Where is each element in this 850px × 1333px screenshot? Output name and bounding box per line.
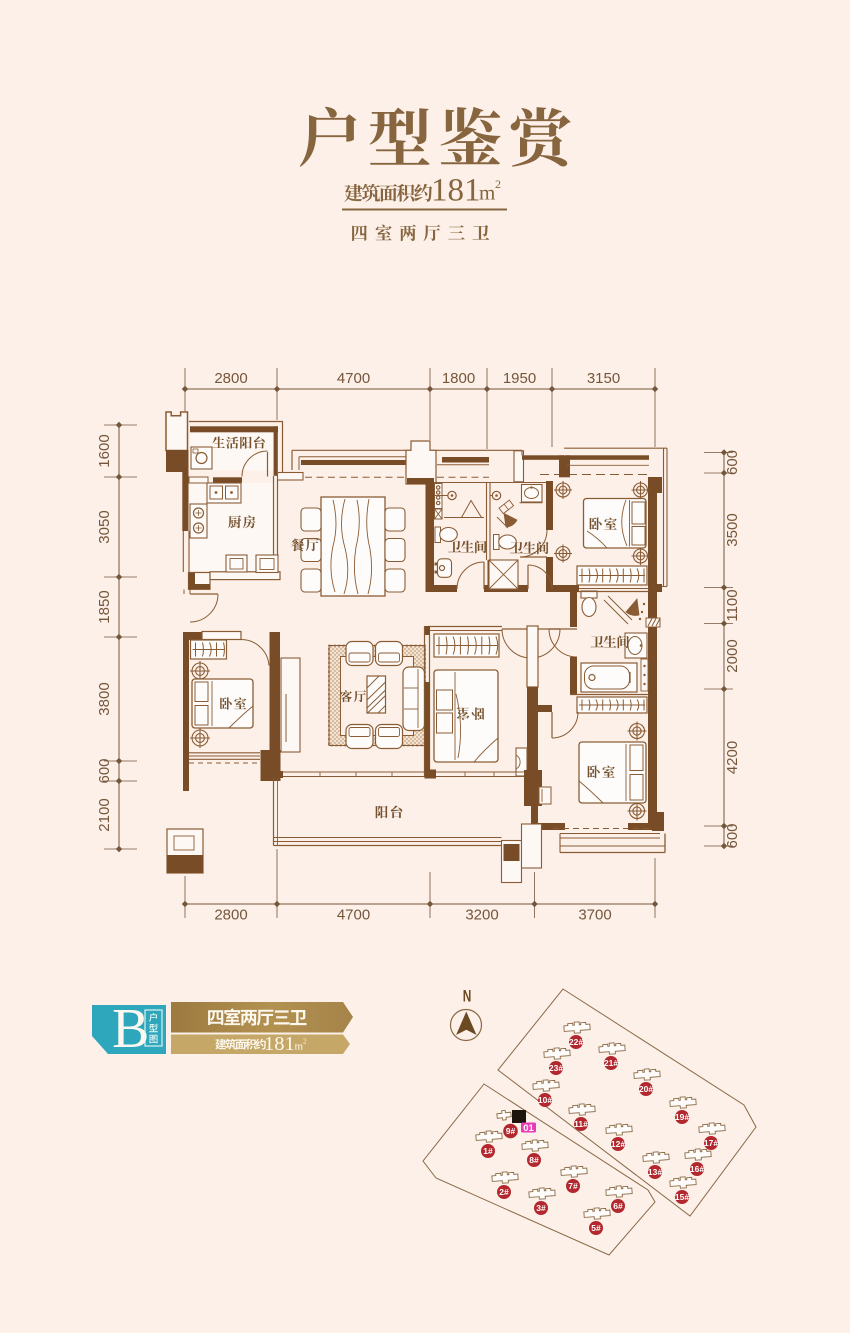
svg-text:4700: 4700 — [337, 907, 370, 924]
svg-text:9#: 9# — [506, 1126, 516, 1136]
svg-text:19#: 19# — [675, 1112, 689, 1122]
svg-text:2100: 2100 — [96, 798, 113, 831]
svg-text:22#: 22# — [569, 1037, 583, 1047]
svg-text:3#: 3# — [536, 1203, 546, 1213]
svg-text:7#: 7# — [568, 1181, 578, 1191]
svg-text:N: N — [463, 988, 472, 1006]
svg-text:8#: 8# — [529, 1155, 539, 1165]
svg-text:1600: 1600 — [96, 434, 113, 467]
svg-text:2800: 2800 — [214, 907, 247, 924]
svg-text:4700: 4700 — [337, 370, 370, 387]
svg-text:181: 181 — [264, 1033, 295, 1055]
svg-text:4200: 4200 — [724, 741, 741, 774]
svg-text:13#: 13# — [648, 1167, 662, 1177]
svg-text:1950: 1950 — [503, 370, 536, 387]
svg-text:3500: 3500 — [724, 513, 741, 546]
svg-text:600: 600 — [96, 758, 113, 783]
svg-text:181: 181 — [431, 173, 481, 209]
svg-text:3200: 3200 — [465, 907, 498, 924]
svg-text:01: 01 — [523, 1123, 534, 1134]
svg-text:1100: 1100 — [724, 589, 741, 621]
svg-text:3050: 3050 — [96, 510, 113, 543]
svg-text:20#: 20# — [639, 1084, 653, 1094]
svg-text:m: m — [479, 181, 495, 205]
svg-text:21#: 21# — [604, 1058, 618, 1068]
svg-text:1#: 1# — [483, 1146, 493, 1156]
svg-text:3700: 3700 — [578, 907, 611, 924]
svg-text:2: 2 — [303, 1038, 307, 1046]
svg-text:600: 600 — [724, 450, 741, 475]
svg-text:B: B — [112, 998, 149, 1060]
svg-text:6#: 6# — [613, 1201, 623, 1211]
svg-text:600: 600 — [724, 823, 741, 848]
svg-text:2000: 2000 — [724, 639, 741, 672]
svg-text:23#: 23# — [549, 1063, 563, 1073]
svg-text:5#: 5# — [591, 1223, 601, 1233]
svg-text:15#: 15# — [675, 1192, 689, 1202]
svg-text:17#: 17# — [704, 1138, 718, 1148]
svg-text:3150: 3150 — [587, 370, 620, 387]
svg-text:16#: 16# — [690, 1164, 704, 1174]
svg-text:2800: 2800 — [214, 370, 247, 387]
svg-text:10#: 10# — [538, 1095, 552, 1105]
svg-text:1800: 1800 — [442, 370, 475, 387]
svg-text:12#: 12# — [611, 1139, 625, 1149]
svg-text:2: 2 — [495, 177, 501, 191]
svg-text:2#: 2# — [499, 1187, 509, 1197]
svg-text:3800: 3800 — [96, 682, 113, 715]
svg-text:11#: 11# — [574, 1119, 588, 1129]
svg-text:1850: 1850 — [96, 590, 113, 623]
